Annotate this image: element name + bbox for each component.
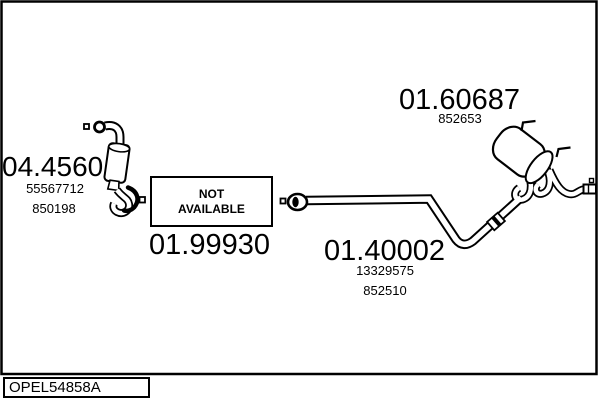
vehicle-code-box: OPEL54858A	[3, 377, 150, 398]
not-available-line2: AVAILABLE	[178, 202, 245, 217]
connection-marker-icon	[140, 197, 146, 203]
oem-ref: 852510	[363, 284, 406, 297]
exhaust-diagram-page: 04.4560 55567712 850198 NOT AVAILABLE 01…	[0, 0, 600, 400]
exhaust-line-art	[0, 0, 600, 400]
connection-marker-icon	[281, 199, 286, 204]
part-code-centre-pipe[interactable]: 01.40002	[324, 237, 445, 266]
rear-silencer-drawing	[487, 121, 596, 194]
not-available-line1: NOT	[199, 187, 224, 202]
part-code-front-pipe[interactable]: 01.99930	[149, 231, 270, 260]
part-code-catalyst[interactable]: 04.4560	[2, 153, 103, 181]
not-available-box: NOT AVAILABLE	[150, 176, 273, 227]
inlet-flange-icon	[95, 122, 105, 132]
tailpipe-tip-icon	[584, 185, 597, 194]
connection-marker-icon	[84, 124, 89, 129]
vehicle-code: OPEL54858A	[9, 379, 101, 396]
hanger-hook-icon	[522, 121, 536, 131]
hanger-hook-icon	[557, 148, 571, 158]
connection-marker-icon	[590, 179, 594, 183]
centre-pipe-drawing	[306, 168, 585, 244]
front-pipe-flange-drawing	[281, 194, 308, 210]
oem-ref: 850198	[32, 202, 75, 215]
oem-ref: 13329575	[356, 264, 414, 277]
oem-ref: 55567712	[26, 182, 84, 195]
diagram-frame	[2, 2, 597, 375]
oem-ref: 852653	[438, 112, 481, 125]
